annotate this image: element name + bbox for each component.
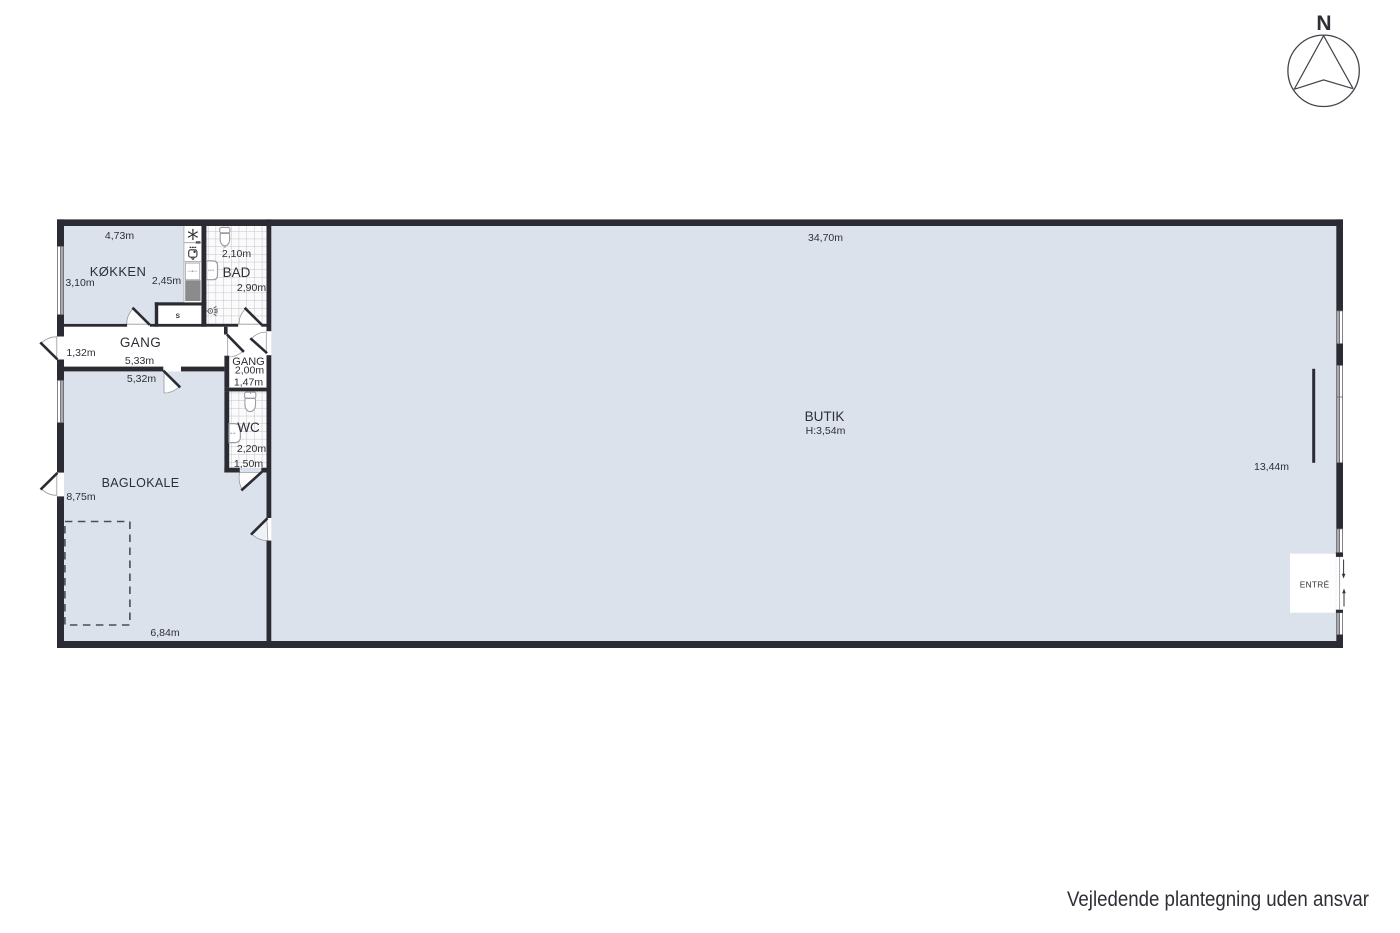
svg-text:5,33m: 5,33m [125,355,154,367]
svg-text:WC: WC [237,420,260,435]
svg-text:2,20m: 2,20m [237,443,266,455]
svg-text:2,45m: 2,45m [152,275,181,287]
svg-text:6,84m: 6,84m [150,627,179,639]
svg-text:S: S [176,313,181,320]
svg-text:1,47m: 1,47m [234,377,263,389]
svg-text:BUTIK: BUTIK [805,409,845,424]
svg-text:ENTRÉ: ENTRÉ [1300,580,1330,590]
svg-text:2,00m: 2,00m [235,364,264,376]
svg-text:34,70m: 34,70m [808,232,843,244]
svg-text:1,50m: 1,50m [234,458,263,470]
svg-text:GANG: GANG [120,335,161,350]
svg-text:13,44m: 13,44m [1254,461,1289,473]
svg-text:BAGLOKALE: BAGLOKALE [102,476,180,490]
svg-text:H:3,54m: H:3,54m [806,425,846,437]
svg-text:BAD: BAD [223,265,251,280]
svg-text:8,75m: 8,75m [66,491,95,503]
svg-text:N: N [1316,12,1331,35]
svg-text:Vejledende plantegning uden an: Vejledende plantegning uden ansvar [1067,887,1369,911]
svg-text:2,10m: 2,10m [222,248,251,260]
svg-text:5,32m: 5,32m [127,373,156,385]
svg-text:1,32m: 1,32m [66,347,95,359]
svg-text:4,73m: 4,73m [105,230,134,242]
svg-text:KØKKEN: KØKKEN [90,264,147,279]
svg-text:3,10m: 3,10m [65,277,94,289]
svg-text:2,90m: 2,90m [237,282,266,294]
